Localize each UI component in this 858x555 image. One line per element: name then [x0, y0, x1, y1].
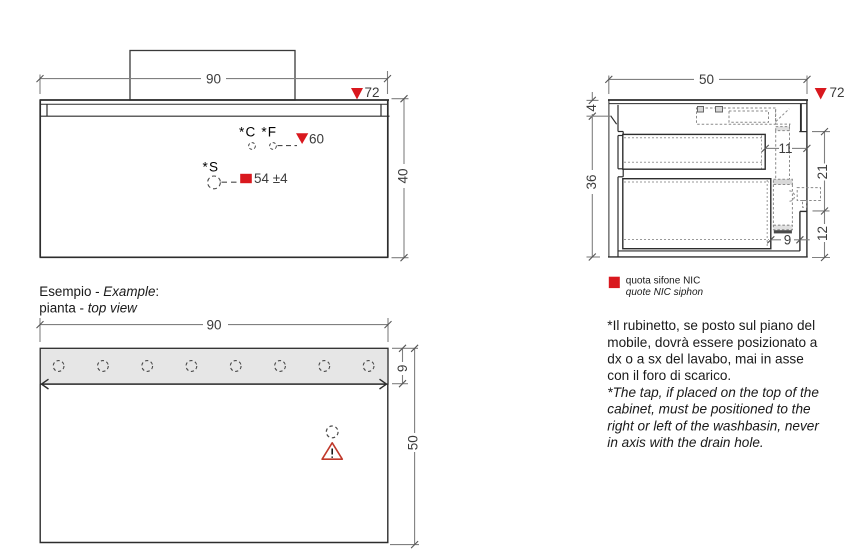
- svg-text:12: 12: [815, 226, 830, 241]
- svg-text:pianta - top view: pianta - top view: [39, 300, 138, 315]
- svg-text:9: 9: [395, 365, 410, 373]
- svg-text:dx o a sx del lavabo, mai in a: dx o a sx del lavabo, mai in asse: [607, 352, 803, 367]
- svg-text:54 ±4: 54 ±4: [254, 171, 288, 186]
- svg-text:quota sifone NIC: quota sifone NIC: [626, 276, 701, 287]
- svg-text:11: 11: [778, 141, 792, 156]
- svg-text:72: 72: [830, 85, 845, 100]
- svg-text:60: 60: [309, 132, 324, 147]
- svg-text:50: 50: [405, 435, 420, 450]
- svg-text:21: 21: [815, 164, 830, 179]
- svg-text:Esempio - Example:: Esempio - Example:: [39, 284, 159, 299]
- svg-text:cabinet, must be positioned to: cabinet, must be positioned to the: [607, 402, 811, 417]
- svg-text:4: 4: [584, 104, 599, 112]
- svg-text:9: 9: [784, 232, 792, 247]
- svg-text:mobile, dovrà essere posiziona: mobile, dovrà essere posizionato a: [607, 335, 818, 350]
- svg-text:*C *F: *C *F: [239, 125, 277, 140]
- svg-text:*S: *S: [203, 159, 220, 174]
- svg-text:right or left of the washbasin: right or left of the washbasin, never: [607, 418, 819, 433]
- svg-text:*Il rubinetto, se posto sul pi: *Il rubinetto, se posto sul piano del: [607, 318, 815, 333]
- svg-text:40: 40: [395, 168, 410, 183]
- svg-text:quote NIC siphon: quote NIC siphon: [626, 287, 704, 298]
- svg-text:90: 90: [206, 71, 221, 86]
- svg-text:*The tap, if placed on the top: *The tap, if placed on the top of the: [607, 385, 819, 400]
- svg-text:in axis with the drain hole.: in axis with the drain hole.: [607, 435, 763, 450]
- svg-text:36: 36: [584, 174, 599, 189]
- svg-text:90: 90: [206, 317, 221, 332]
- svg-text:72: 72: [365, 85, 380, 100]
- svg-text:50: 50: [699, 72, 714, 87]
- svg-text:con il foro di scarico.: con il foro di scarico.: [607, 368, 731, 383]
